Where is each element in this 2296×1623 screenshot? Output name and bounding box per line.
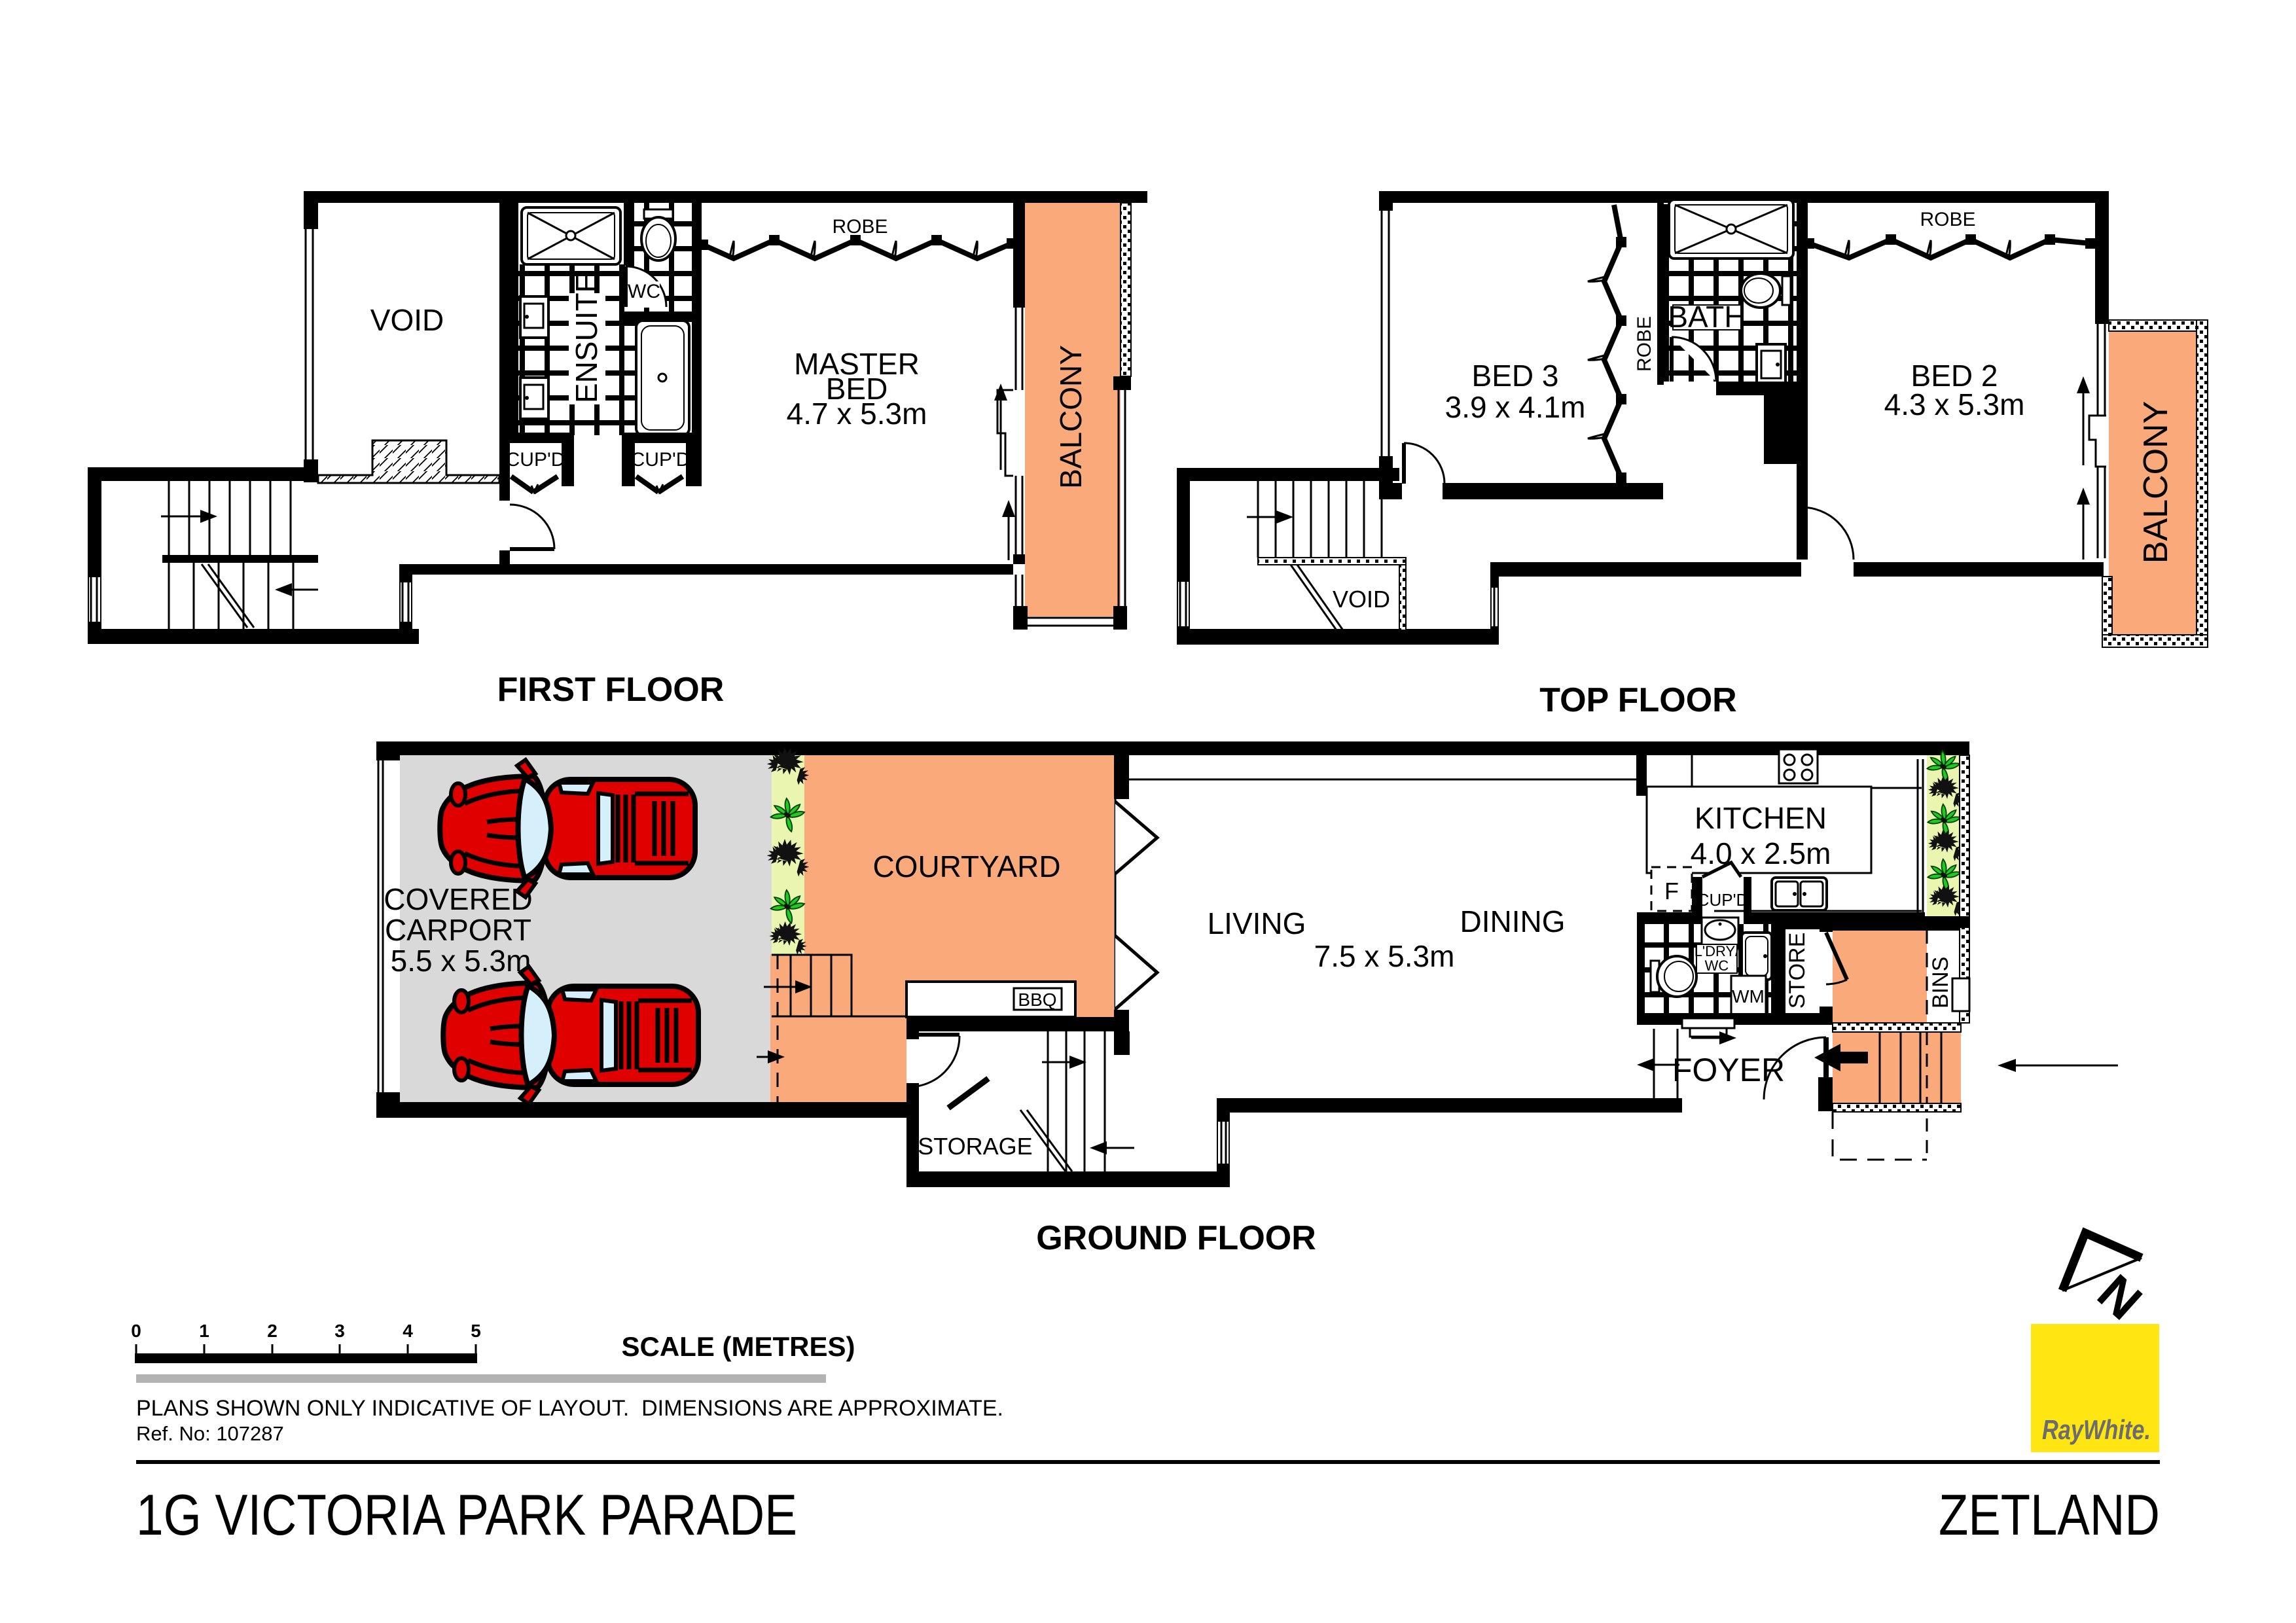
- svg-text:TOP FLOOR: TOP FLOOR: [1539, 681, 1736, 719]
- svg-text:RayWhite.: RayWhite.: [2042, 1414, 2151, 1445]
- svg-text:ROBE: ROBE: [1920, 209, 1975, 230]
- svg-text:BALCONY: BALCONY: [2137, 401, 2175, 564]
- svg-text:2: 2: [267, 1321, 278, 1341]
- svg-text:COVERED: COVERED: [384, 882, 532, 916]
- svg-text:4.0 x 2.5m: 4.0 x 2.5m: [1691, 836, 1831, 870]
- svg-text:F: F: [1664, 878, 1679, 904]
- svg-text:KITCHEN: KITCHEN: [1695, 801, 1827, 835]
- svg-text:7.5 x 5.3m: 7.5 x 5.3m: [1314, 939, 1455, 973]
- svg-text:WM: WM: [1732, 986, 1765, 1007]
- svg-text:ENSUITE: ENSUITE: [569, 273, 603, 403]
- svg-text:BALCONY: BALCONY: [1054, 345, 1088, 489]
- svg-text:BBQ: BBQ: [1018, 990, 1056, 1010]
- svg-text:4: 4: [403, 1321, 413, 1341]
- svg-text:1: 1: [199, 1321, 209, 1341]
- svg-text:BED 3: BED 3: [1472, 359, 1559, 393]
- svg-text:SCALE (METRES): SCALE (METRES): [622, 1331, 855, 1362]
- svg-text:BINS: BINS: [1928, 957, 1953, 1008]
- svg-text:4.3 x 5.3m: 4.3 x 5.3m: [1884, 387, 2025, 421]
- svg-text:GROUND FLOOR: GROUND FLOOR: [1036, 1219, 1316, 1257]
- svg-text:STORE: STORE: [1785, 933, 1810, 1009]
- svg-text:5.5 x 5.3m: 5.5 x 5.3m: [391, 944, 531, 978]
- svg-text:5: 5: [471, 1321, 481, 1341]
- svg-text:VOID: VOID: [1333, 586, 1390, 613]
- svg-text:CARPORT: CARPORT: [385, 913, 531, 947]
- svg-text:0: 0: [131, 1321, 141, 1341]
- svg-text:ROBE: ROBE: [1634, 316, 1655, 372]
- svg-text:Ref. No: 107287: Ref. No: 107287: [136, 1422, 284, 1445]
- svg-text:BATH: BATH: [1668, 300, 1746, 334]
- svg-text:FOYER: FOYER: [1672, 1052, 1785, 1088]
- svg-text:WC: WC: [628, 281, 660, 302]
- svg-text:1G VICTORIA PARK PARADE: 1G VICTORIA PARK PARADE: [136, 1482, 797, 1547]
- svg-text:WC: WC: [1705, 957, 1729, 974]
- svg-text:CUP'D: CUP'D: [1697, 890, 1749, 910]
- svg-text:FIRST FLOOR: FIRST FLOOR: [497, 671, 725, 709]
- svg-text:3: 3: [334, 1321, 345, 1341]
- svg-text:LIVING: LIVING: [1208, 906, 1306, 940]
- svg-text:PLANS SHOWN ONLY INDICATIVE OF: PLANS SHOWN ONLY INDICATIVE OF LAYOUT. D…: [136, 1396, 1003, 1421]
- svg-text:ZETLAND: ZETLAND: [1939, 1482, 2160, 1547]
- svg-text:DINING: DINING: [1460, 904, 1566, 938]
- svg-text:4.7 x 5.3m: 4.7 x 5.3m: [787, 397, 927, 431]
- svg-text:3.9 x 4.1m: 3.9 x 4.1m: [1445, 390, 1586, 424]
- svg-text:CUP'D: CUP'D: [631, 449, 691, 471]
- svg-text:VOID: VOID: [370, 303, 444, 337]
- svg-text:COURTYARD: COURTYARD: [872, 849, 1060, 883]
- svg-text:ROBE: ROBE: [832, 216, 888, 238]
- svg-text:CUP'D: CUP'D: [506, 449, 565, 471]
- svg-text:STORAGE: STORAGE: [918, 1133, 1032, 1160]
